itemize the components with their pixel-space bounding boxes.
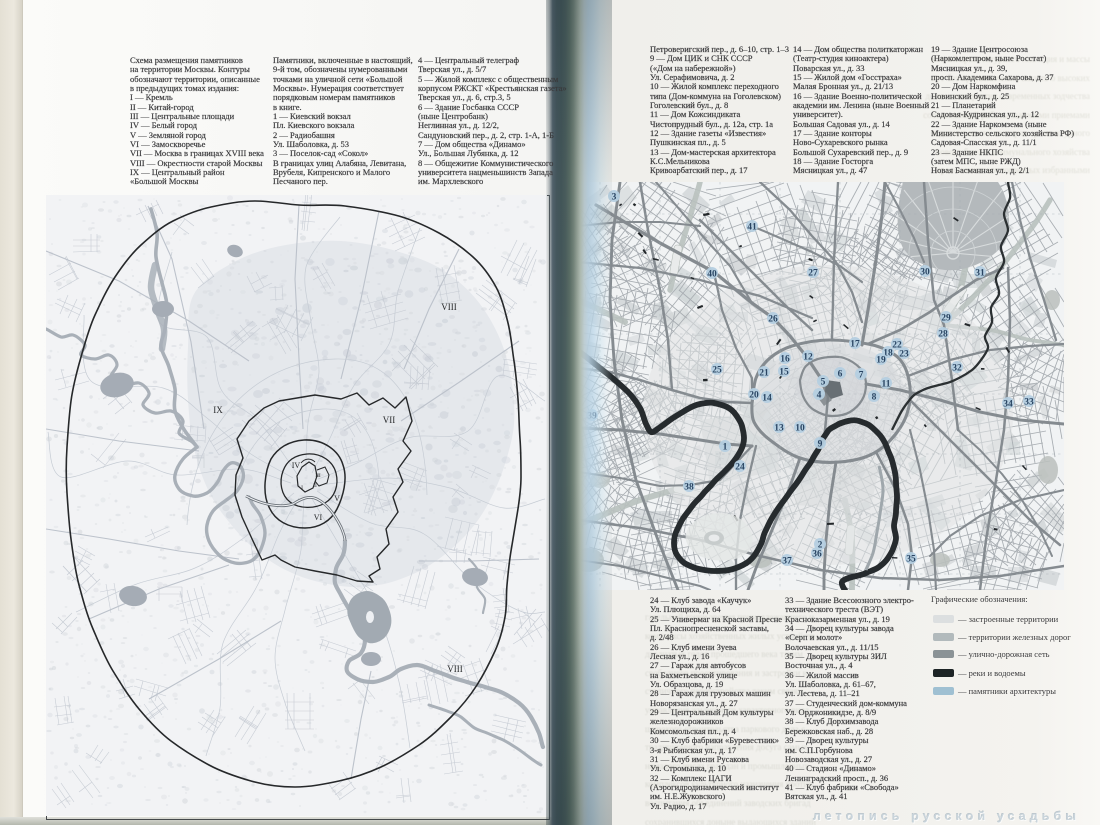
svg-text:34: 34 xyxy=(1003,399,1013,409)
svg-text:9: 9 xyxy=(818,439,823,449)
svg-text:38: 38 xyxy=(684,482,694,492)
svg-text:1: 1 xyxy=(723,442,728,452)
svg-text:19: 19 xyxy=(876,355,886,365)
svg-text:33: 33 xyxy=(1024,397,1034,407)
svg-text:35: 35 xyxy=(906,554,916,564)
svg-text:21: 21 xyxy=(759,368,769,378)
svg-text:IV: IV xyxy=(292,461,301,470)
svg-text:29: 29 xyxy=(941,313,951,323)
svg-text:I: I xyxy=(301,485,303,491)
svg-text:30: 30 xyxy=(920,267,930,277)
svg-text:25: 25 xyxy=(712,365,722,375)
svg-text:36: 36 xyxy=(812,549,822,559)
svg-text:VIII: VIII xyxy=(441,302,457,312)
svg-text:II: II xyxy=(313,483,317,489)
svg-text:37: 37 xyxy=(782,556,792,566)
svg-text:32: 32 xyxy=(952,363,962,373)
svg-text:14: 14 xyxy=(762,393,772,403)
svg-text:3: 3 xyxy=(612,192,617,202)
svg-text:VI: VI xyxy=(314,513,323,522)
svg-text:10: 10 xyxy=(795,423,805,433)
svg-text:28: 28 xyxy=(938,329,948,339)
svg-text:20: 20 xyxy=(749,390,759,400)
svg-text:6: 6 xyxy=(838,369,843,379)
svg-text:VIII: VIII xyxy=(447,664,463,674)
svg-text:16: 16 xyxy=(780,354,790,364)
svg-text:23: 23 xyxy=(899,349,909,359)
svg-text:26: 26 xyxy=(768,314,778,324)
svg-text:8: 8 xyxy=(872,392,877,402)
svg-text:12: 12 xyxy=(803,352,813,362)
svg-text:41: 41 xyxy=(747,222,757,232)
svg-text:V: V xyxy=(334,494,340,503)
svg-text:IX: IX xyxy=(213,405,223,415)
svg-text:40: 40 xyxy=(707,269,717,279)
svg-text:11: 11 xyxy=(882,379,891,389)
svg-text:4: 4 xyxy=(817,390,822,400)
svg-text:7: 7 xyxy=(859,370,864,380)
svg-text:13: 13 xyxy=(774,423,784,433)
svg-text:27: 27 xyxy=(808,268,818,278)
svg-text:VII: VII xyxy=(383,415,396,425)
svg-text:31: 31 xyxy=(975,268,985,278)
svg-text:5: 5 xyxy=(821,377,826,387)
svg-text:III: III xyxy=(315,473,321,479)
svg-text:15: 15 xyxy=(779,367,789,377)
svg-text:24: 24 xyxy=(735,462,745,472)
svg-text:17: 17 xyxy=(850,339,860,349)
